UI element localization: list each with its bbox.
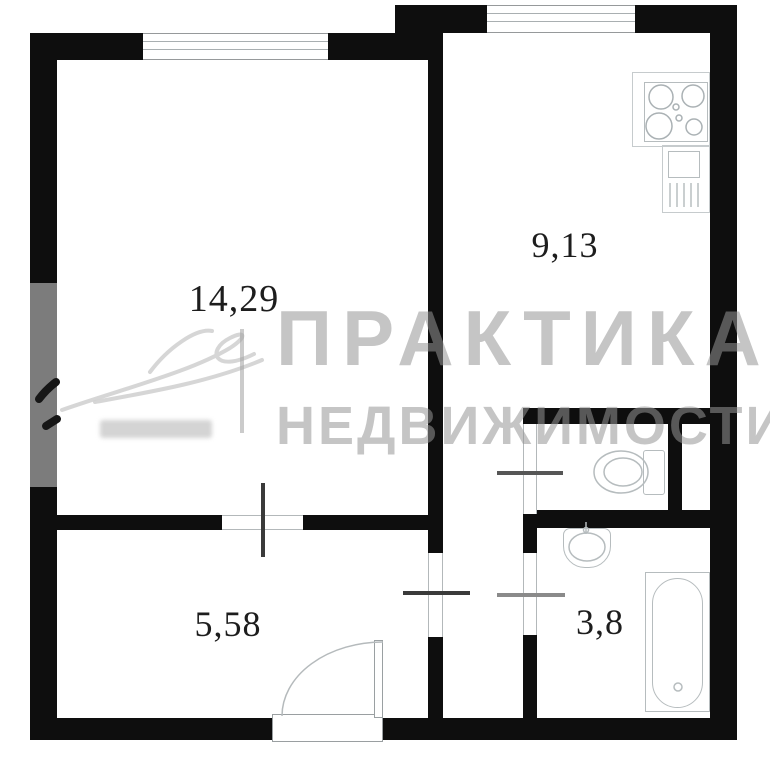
living-room-window (143, 33, 328, 60)
kitchen-area-label: 9,13 (532, 224, 599, 266)
central-wall-upper (428, 33, 443, 553)
living-room-area-label: 14,29 (189, 277, 280, 321)
entry-door-opening (272, 714, 383, 742)
toilet-icon (594, 451, 648, 493)
living-hallway-wall-right (303, 515, 428, 530)
toilet-door-leaf (497, 471, 563, 475)
living-door-leaf (261, 483, 265, 557)
wash-basin-body (563, 528, 611, 568)
stove-top (644, 82, 708, 142)
watermark-line1: ПРАКТИКА (276, 299, 770, 377)
hallway-corridor-opening (428, 553, 443, 637)
bath-left-wall-mid (523, 510, 537, 553)
kitchen-sink-basin (668, 151, 700, 178)
top-wall-living-right (328, 33, 443, 60)
entry-door-arc (282, 642, 383, 716)
living-hallway-wall-left (57, 515, 222, 530)
watermark-logo-icon (62, 331, 262, 410)
floor-plan: 14,29 9,13 5,58 3,8 ПРАКТИКА НЕДВИЖИМОСТ… (0, 0, 770, 768)
watermark-line2: НЕДВИЖИМОСТИ (276, 399, 770, 453)
bath-left-wall-stub (523, 635, 537, 718)
left-wall-window-segment (30, 283, 57, 487)
left-wall-lower (30, 487, 57, 740)
hallway-door-leaf (403, 591, 470, 595)
kitchen-window (487, 5, 635, 33)
central-wall-lower-stub (428, 637, 443, 718)
watermark-divider (240, 329, 244, 433)
toilet-bath-divider-wall (523, 510, 737, 528)
watermark-caption-blur (100, 420, 212, 438)
left-wall-upper (30, 33, 57, 283)
bottom-wall-right (383, 718, 737, 740)
top-wall-living-left (30, 33, 143, 60)
top-wall-kitchen-left (395, 5, 487, 33)
bathroom-door-leaf (497, 593, 565, 597)
bottom-wall-left (30, 718, 272, 740)
entry-door-leaf (374, 640, 383, 718)
bathroom-area-label: 3,8 (576, 601, 624, 643)
hallway-area-label: 5,58 (195, 603, 262, 645)
bathtub-inner (652, 578, 703, 708)
toilet-tank (643, 450, 665, 495)
